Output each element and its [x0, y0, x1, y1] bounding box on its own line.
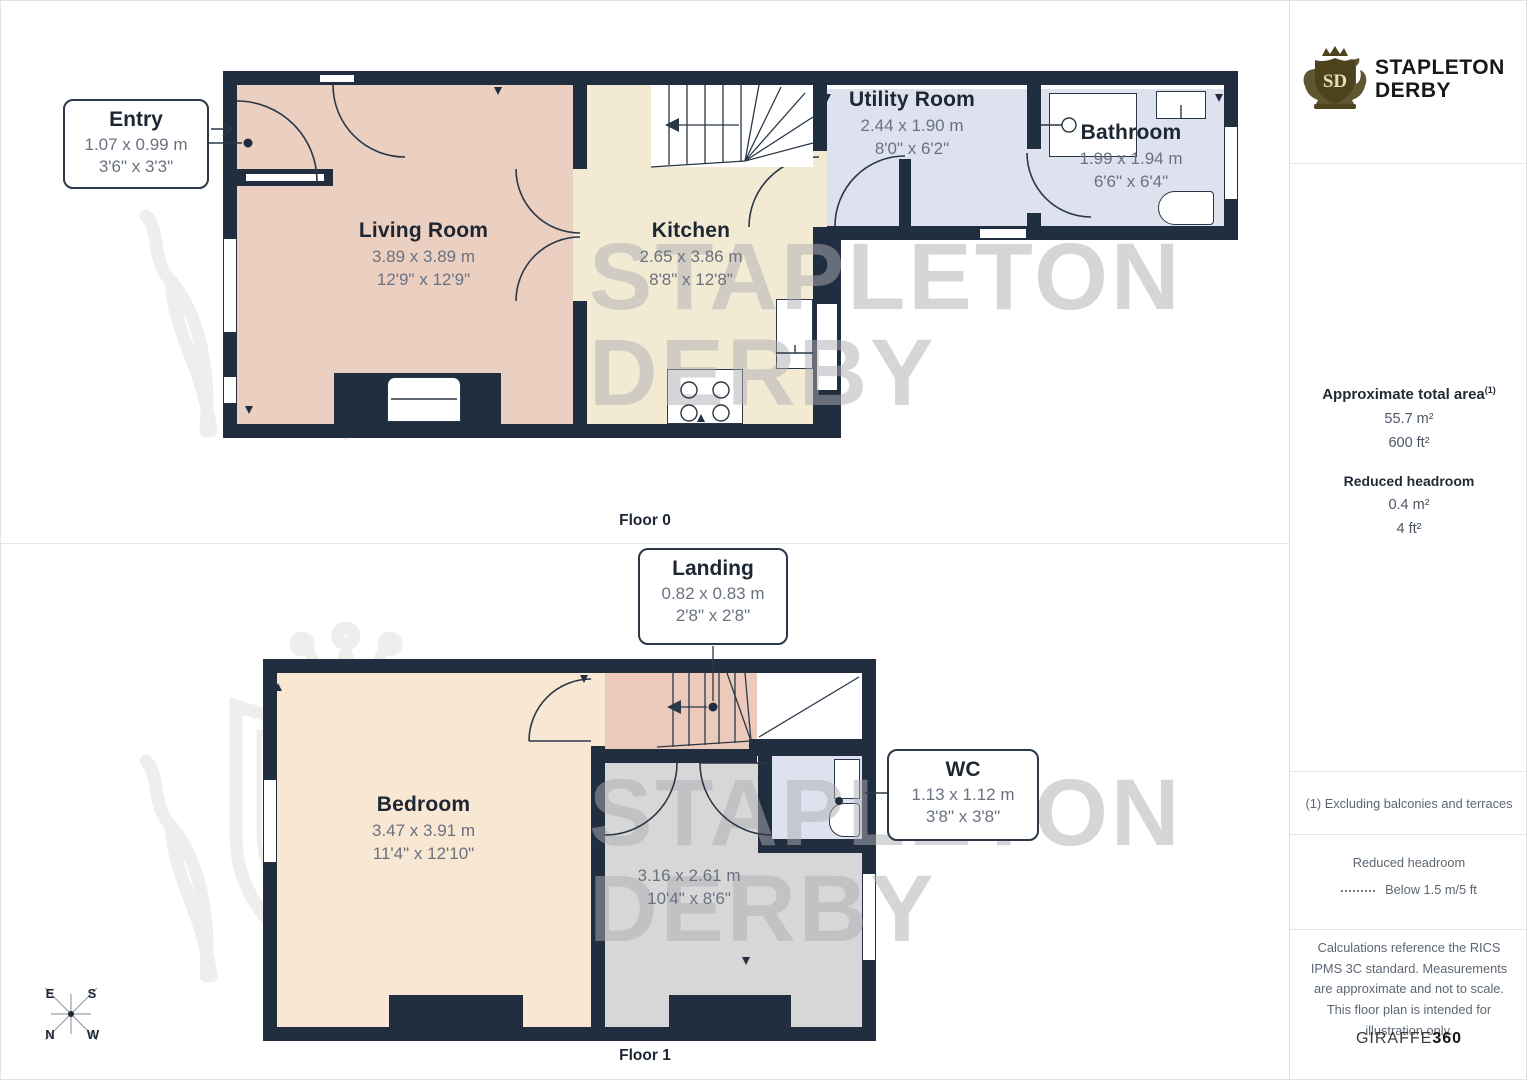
disclaimer-text: Calculations reference the RICS IPMS 3C … — [1290, 938, 1527, 1042]
reduced-headroom-ft2: 4 ft² — [1290, 521, 1527, 537]
legend-value: Below 1.5 m/5 ft — [1385, 882, 1477, 897]
callout-landing: Landing 0.82 x 0.83 m 2'8" x 2'8" — [638, 548, 788, 645]
wall-segment — [1027, 85, 1041, 149]
brand-crest-icon: SD — [1302, 46, 1368, 114]
total-area-title: Approximate total area(1) — [1290, 385, 1527, 403]
wall-segment — [758, 839, 876, 853]
door-opening-utility-bathroom — [1027, 149, 1041, 213]
stair-void — [757, 673, 862, 739]
floorplan-page: SD — [0, 0, 1527, 1080]
window — [319, 74, 355, 83]
sidebar-divider — [1290, 834, 1527, 835]
chimney-breast — [669, 995, 791, 1027]
total-area-ft2: 600 ft² — [1290, 435, 1527, 451]
sidebar-divider — [1290, 929, 1527, 930]
legend-row: Below 1.5 m/5 ft — [1290, 882, 1527, 897]
window — [263, 779, 277, 863]
reduced-headroom-m2: 0.4 m² — [1290, 497, 1527, 513]
kitchen-counter — [776, 299, 813, 369]
door-leaf-wall — [899, 159, 911, 226]
callout-entry: Entry 1.07 x 0.99 m 3'6" x 3'3" — [63, 99, 209, 189]
credit-bold: 360 — [1432, 1030, 1462, 1047]
door-opening-bedroom — [591, 673, 605, 746]
wall-segment — [1027, 213, 1041, 226]
fireplace-hearth — [387, 377, 461, 422]
legend-section: Reduced headroom Below 1.5 m/5 ft — [1290, 855, 1527, 897]
wall-segment — [263, 1027, 876, 1041]
door-opening-kitchen-utility — [813, 151, 827, 227]
compass-n: N — [45, 1027, 54, 1042]
floor0-caption: Floor 0 — [1, 512, 1289, 530]
room-dim-metric: 0.82 x 0.83 m — [661, 584, 764, 603]
chimney-breast — [389, 995, 523, 1027]
room-bedroom-floor — [277, 673, 591, 1027]
door-threshold — [979, 228, 1027, 239]
panel-divider — [1, 543, 1289, 544]
giraffe360-credit: GIRAFFE360 — [1290, 1030, 1527, 1048]
hob-counter — [667, 369, 743, 424]
dashed-line-sample — [1341, 890, 1375, 892]
wc-sink — [834, 759, 860, 799]
compass: E S N W — [45, 986, 100, 1042]
room-dim-imperial: 2'8" x 2'8" — [676, 606, 750, 625]
sidebar: SD STAPLETON DERBY Approximate total are… — [1289, 1, 1527, 1080]
room-name: WC — [895, 758, 1031, 782]
brand-name-line1: STAPLETON — [1375, 57, 1505, 80]
wall-segment — [827, 226, 1238, 240]
wall-segment — [223, 71, 1238, 85]
window — [816, 303, 838, 391]
sidebar-divider — [1290, 163, 1527, 164]
window — [862, 873, 876, 961]
wall-segment — [813, 85, 827, 151]
room-name: Entry — [71, 108, 201, 132]
floor1-caption: Floor 1 — [1, 1047, 1289, 1065]
room-utility-floor — [827, 89, 1027, 226]
footnote-text: (1) Excluding balconies and terraces — [1290, 796, 1527, 811]
window — [223, 376, 237, 404]
wall-segment — [573, 301, 587, 424]
total-area-m2: 55.7 m² — [1290, 411, 1527, 427]
compass-e: E — [46, 986, 55, 1001]
sidebar-divider — [1290, 771, 1527, 772]
room-dim-imperial: 3'8" x 3'8" — [926, 807, 1000, 826]
legend-title: Reduced headroom — [1290, 855, 1527, 870]
room-dim-metric: 1.07 x 0.99 m — [84, 135, 187, 154]
wall-segment — [591, 746, 605, 1027]
brand-monogram: SD — [1323, 71, 1347, 92]
compass-s: S — [88, 986, 97, 1001]
total-area-section: Approximate total area(1) 55.7 m² 600 ft… — [1290, 385, 1527, 537]
bathroom-sink — [1156, 91, 1206, 119]
wc-toilet — [829, 803, 860, 837]
shower-enclosure — [1049, 93, 1137, 157]
room-landing-floor — [605, 673, 757, 749]
wall-segment — [749, 739, 876, 756]
room-name: Landing — [646, 557, 780, 581]
compass-w: W — [87, 1027, 100, 1042]
brand-name: STAPLETON DERBY — [1375, 57, 1505, 103]
wall-segment — [591, 749, 757, 763]
wall-segment — [223, 424, 841, 438]
wall-segment — [263, 659, 876, 673]
window — [1224, 126, 1238, 200]
footnote-marker: (1) — [1485, 385, 1496, 395]
brand-name-line2: DERBY — [1375, 80, 1505, 103]
entry-stub-window — [245, 173, 325, 182]
wall-segment — [573, 85, 587, 169]
window — [223, 238, 237, 333]
compass-center-dot — [68, 1011, 74, 1017]
credit-normal: GIRAFFE — [1356, 1030, 1432, 1047]
brand-logo: SD STAPLETON DERBY — [1302, 46, 1505, 114]
bathtub — [1158, 191, 1214, 225]
callout-wc: WC 1.13 x 1.12 m 3'8" x 3'8" — [887, 749, 1039, 841]
door-opening-living-kitchen — [573, 169, 587, 301]
room-dim-imperial: 3'6" x 3'3" — [99, 157, 173, 176]
reduced-headroom-title: Reduced headroom — [1290, 473, 1527, 489]
room-dim-metric: 1.13 x 1.12 m — [911, 785, 1014, 804]
